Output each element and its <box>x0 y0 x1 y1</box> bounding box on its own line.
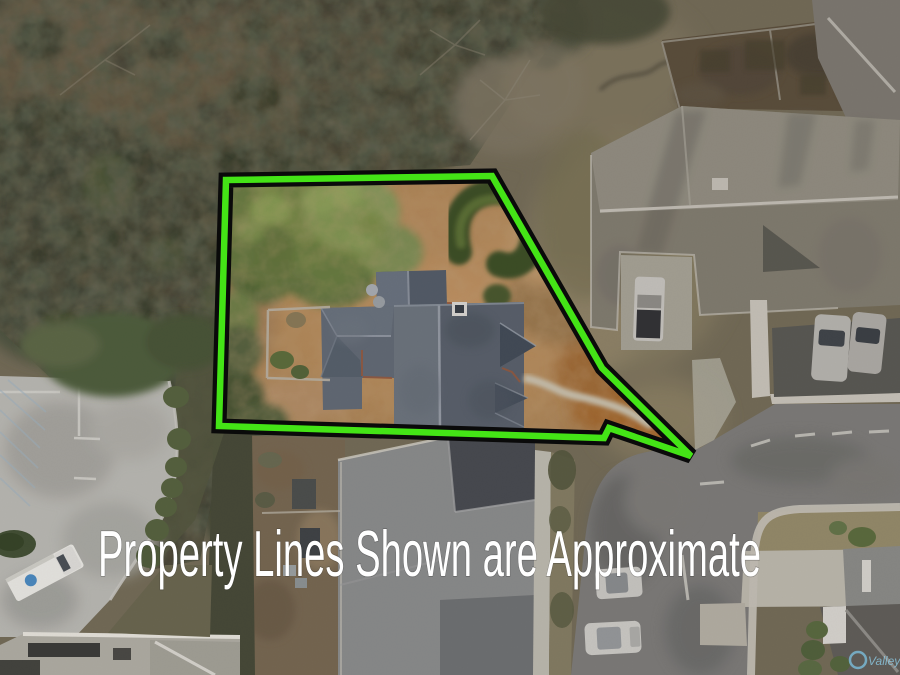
svg-text:Property Lines Shown are Appro: Property Lines Shown are Approximate <box>98 517 761 590</box>
svg-text:ValleyMLS: ValleyMLS <box>868 654 900 668</box>
